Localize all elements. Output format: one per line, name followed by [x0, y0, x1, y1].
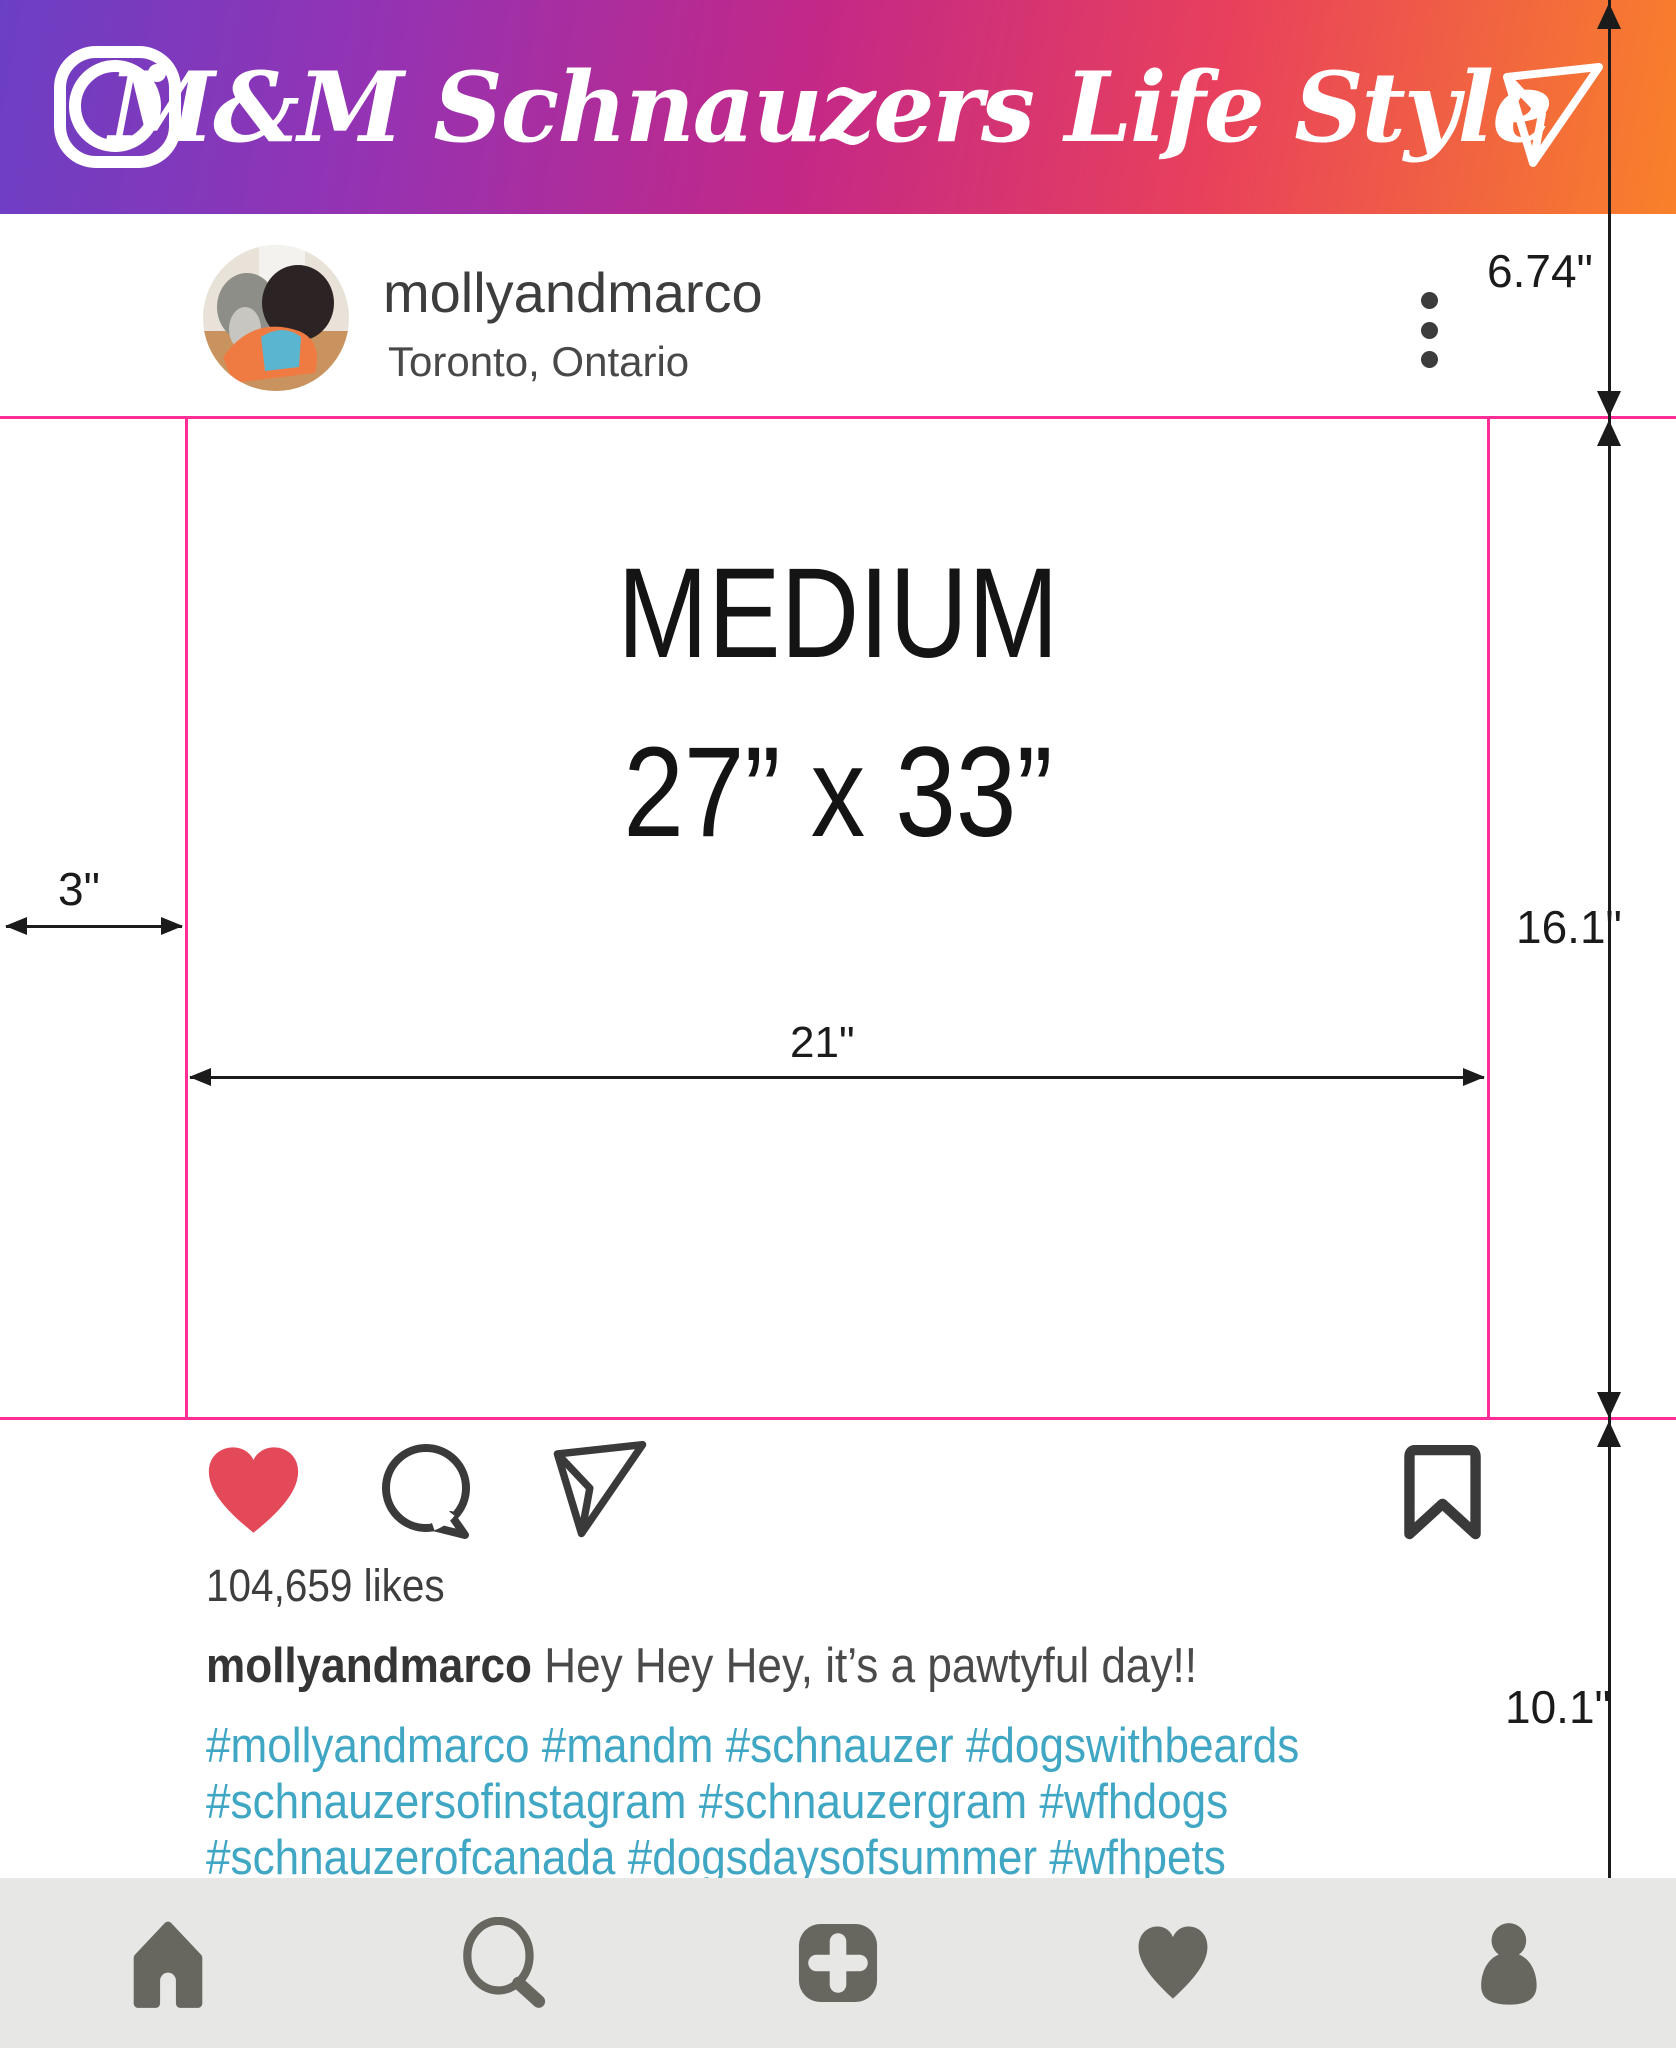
image-width-arrow: [190, 1076, 1484, 1079]
top-height-label: 6.74": [1487, 244, 1593, 298]
size-name: MEDIUM: [285, 540, 1392, 687]
caption: mollyandmarco Hey Hey Hey, it’s a pawtyf…: [206, 1638, 1299, 1694]
post-text-block: 104,659 likes mollyandmarco Hey Hey Hey,…: [206, 1560, 1299, 1886]
header-share-plane-icon[interactable]: [1502, 62, 1604, 175]
arrowhead-guide2-down: [1597, 1392, 1621, 1418]
bookmark-icon[interactable]: [1400, 1445, 1485, 1545]
hashtag-line[interactable]: #mollyandmarco #mandm #schnauzer #dogswi…: [206, 1718, 1299, 1774]
guide-line-left: [185, 419, 188, 1418]
app-header: M&M Schnauzers Life Style: [0, 0, 1676, 214]
location-link[interactable]: Toronto, Ontario: [388, 338, 689, 386]
hashtag-line[interactable]: #schnauzersofinstagram #schnauzergram #w…: [206, 1774, 1299, 1830]
username[interactable]: mollyandmarco: [383, 260, 763, 325]
bottom-height-label: 10.1": [1505, 1680, 1611, 1734]
guide-line-right: [1487, 419, 1490, 1418]
hashtags: #mollyandmarco #mandm #schnauzer #dogswi…: [206, 1718, 1299, 1886]
vertical-dimension-line: [1608, 0, 1611, 2048]
size-text: MEDIUM 27” x 33”: [285, 540, 1392, 866]
caption-text: Hey Hey Hey, it’s a pawtyful day!!: [544, 1639, 1197, 1693]
arrowhead-guide1-up: [1597, 420, 1621, 446]
comment-bubble-icon[interactable]: [381, 1443, 473, 1545]
caption-username[interactable]: mollyandmarco: [206, 1639, 532, 1693]
arrowhead-guide1-down: [1597, 391, 1621, 417]
like-heart-icon[interactable]: [205, 1443, 302, 1543]
nav-home-icon[interactable]: [113, 1908, 223, 2018]
left-margin-label: 3": [58, 862, 100, 916]
likes-count[interactable]: 104,659 likes: [206, 1560, 1299, 1612]
bottom-nav-bar: [0, 1878, 1676, 2048]
share-plane-icon[interactable]: [551, 1440, 649, 1545]
nav-activity-heart-icon[interactable]: [1118, 1908, 1228, 2018]
left-margin-arrow: [6, 925, 182, 928]
nav-profile-icon[interactable]: [1453, 1908, 1563, 2018]
size-dimensions: 27” x 33”: [285, 719, 1392, 866]
nav-new-post-icon[interactable]: [783, 1908, 893, 2018]
image-height-label: 16.1": [1516, 900, 1622, 954]
arrowhead-guide2-up: [1597, 1421, 1621, 1447]
guide-line-bottom: [0, 1417, 1676, 1420]
image-width-label: 21": [790, 1018, 855, 1068]
nav-search-icon[interactable]: [448, 1908, 558, 2018]
kebab-menu-icon[interactable]: [1420, 292, 1438, 368]
arrowhead-top-up: [1597, 3, 1621, 29]
instagram-post-size-mockup: M&M Schnauzers Life Style mollyandmarco …: [0, 0, 1676, 2048]
avatar[interactable]: [203, 245, 349, 391]
guide-line-top: [0, 416, 1676, 419]
page-title: M&M Schnauzers Life Style: [185, 20, 1475, 194]
